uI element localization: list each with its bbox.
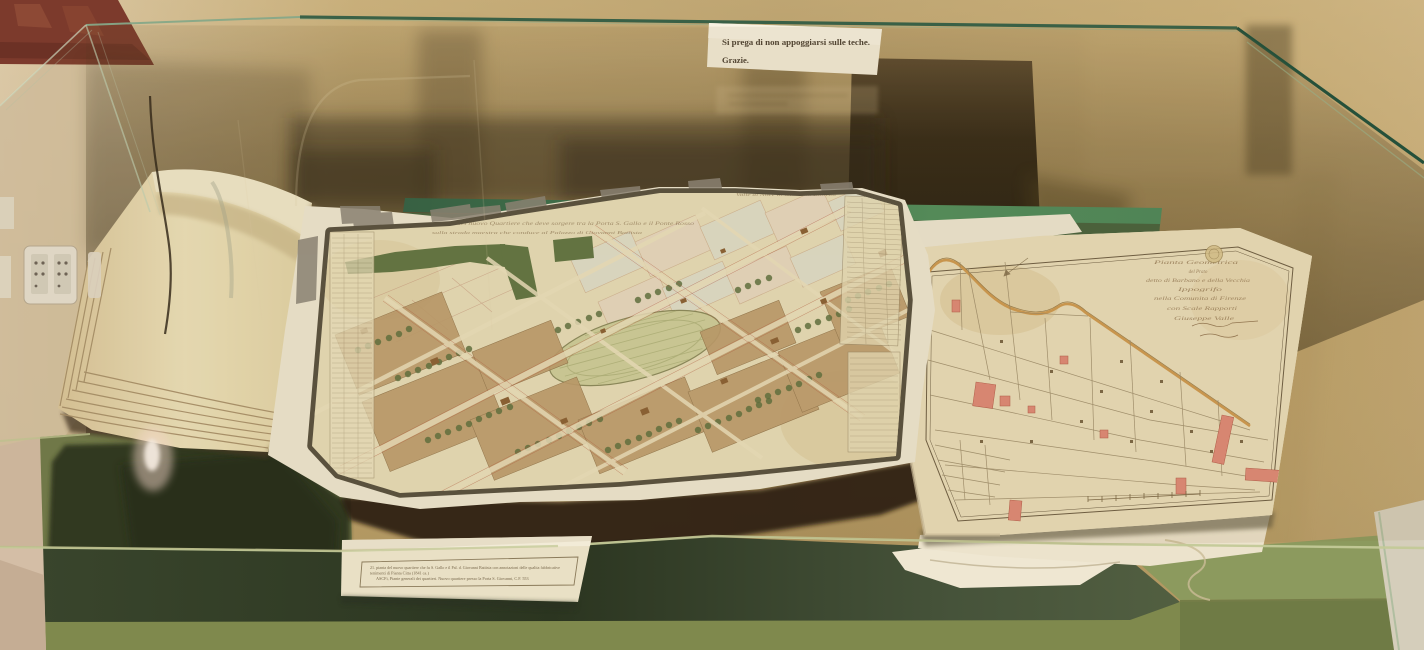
svg-text:tenimenti di Pianta Citta (184: tenimenti di Pianta Citta (1841 ca.) xyxy=(370,571,429,576)
svg-text:21. pianta del nuovo quartiere: 21. pianta del nuovo quartiere che fu S.… xyxy=(370,565,560,570)
